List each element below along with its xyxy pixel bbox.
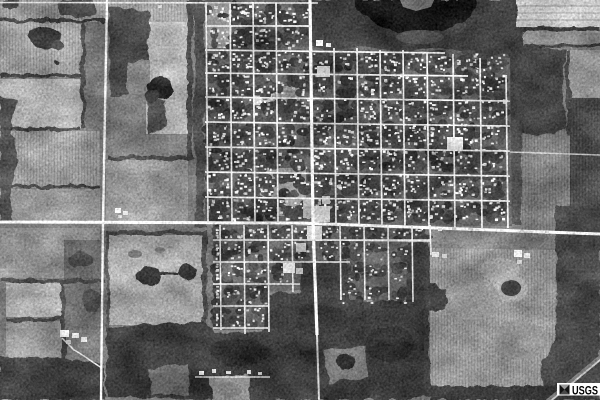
svg-text:USGS: USGS — [572, 386, 598, 398]
